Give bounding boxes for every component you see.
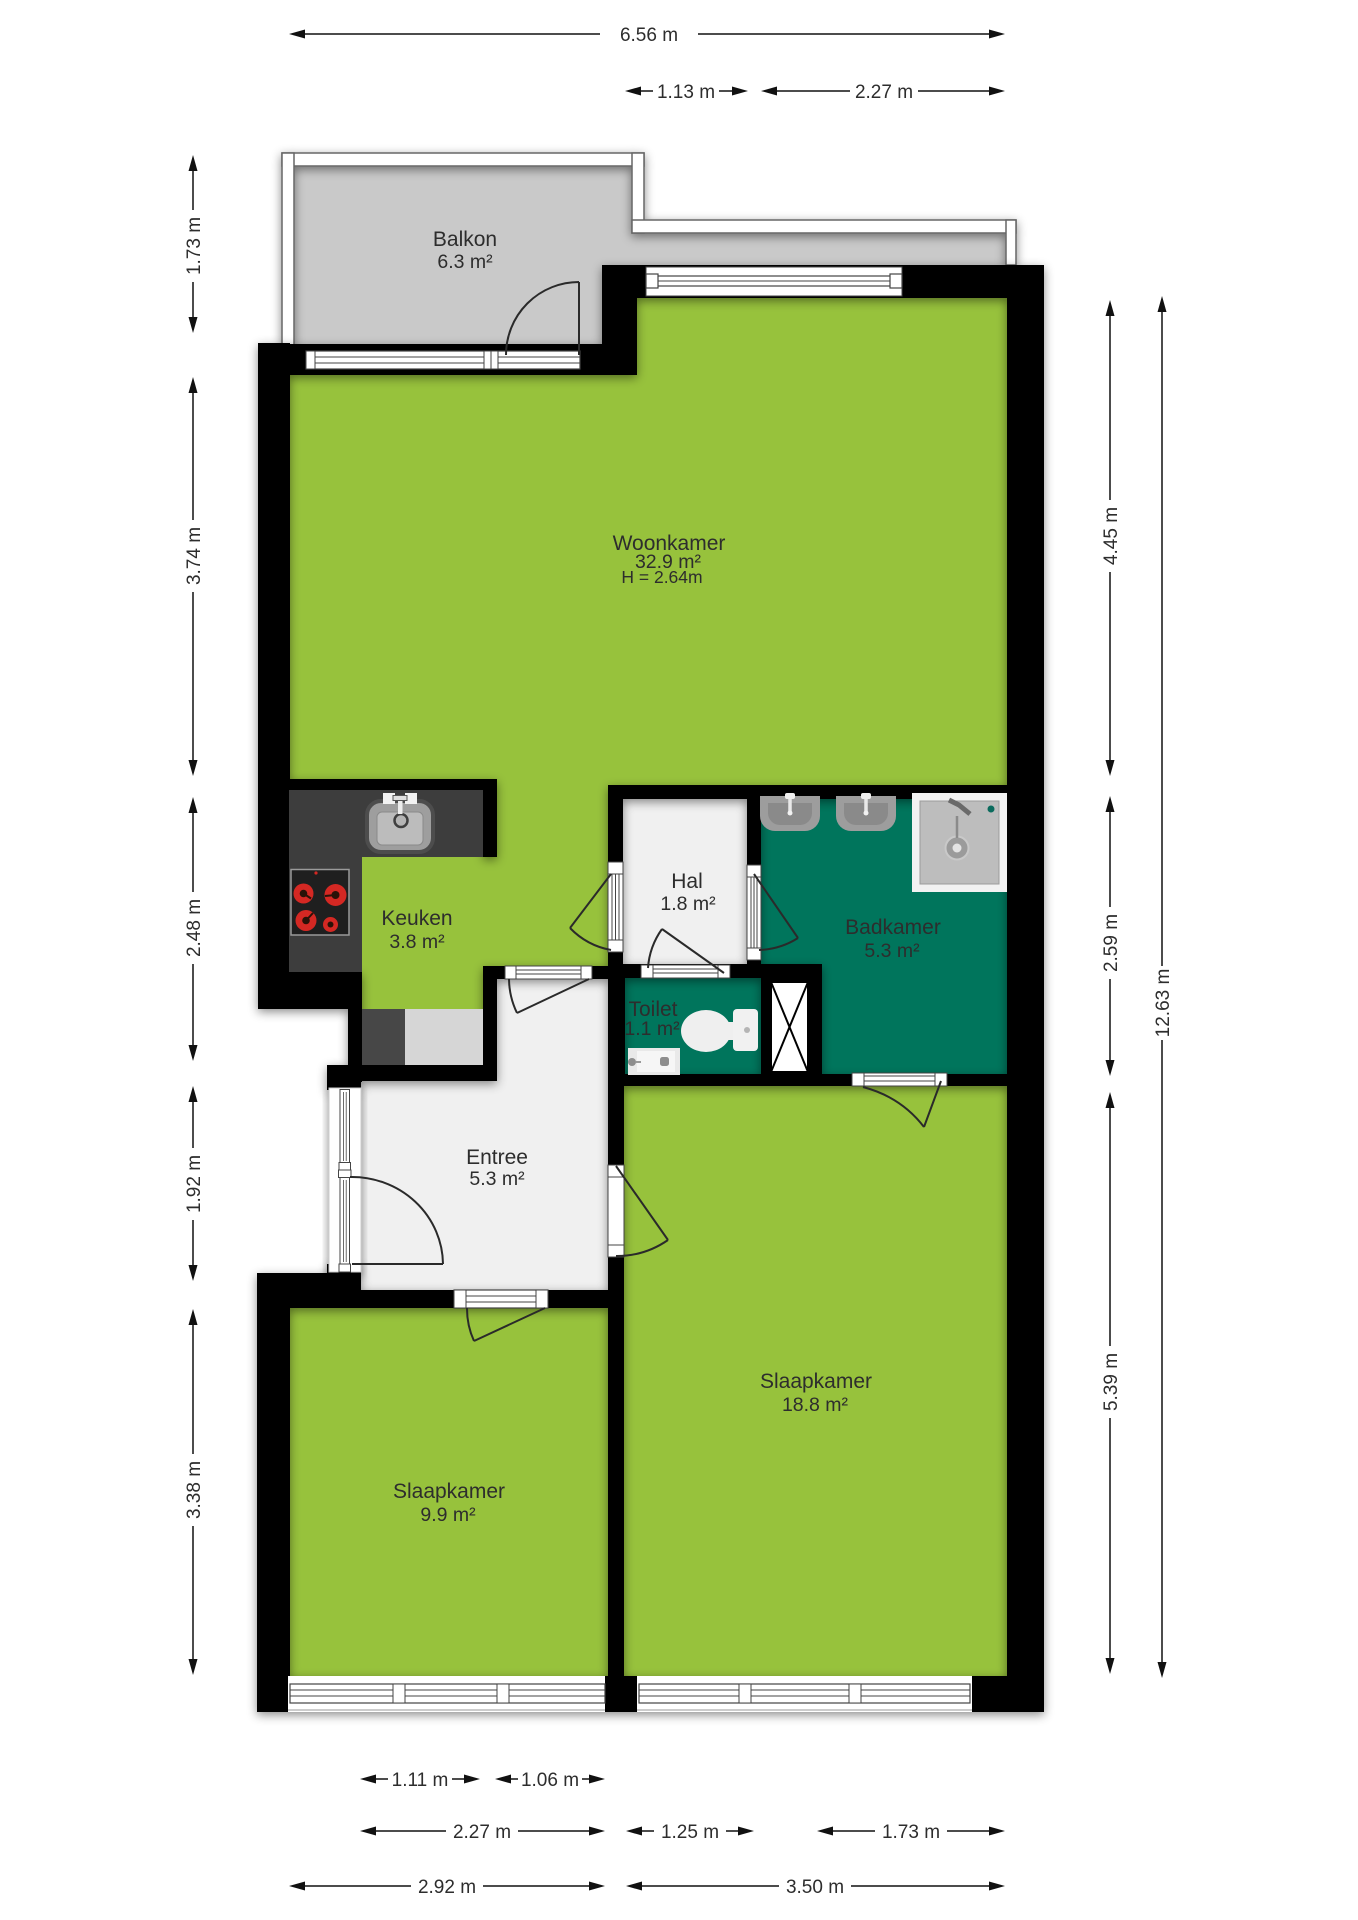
svg-text:Keuken: Keuken [381, 907, 452, 930]
svg-text:3.8 m²: 3.8 m² [389, 931, 445, 953]
svg-text:1.8 m²: 1.8 m² [660, 893, 716, 915]
svg-text:3.50 m: 3.50 m [786, 1877, 844, 1898]
svg-text:1.73 m: 1.73 m [882, 1822, 940, 1843]
svg-text:3.74 m: 3.74 m [184, 527, 205, 585]
svg-text:5.39 m: 5.39 m [1101, 1353, 1122, 1411]
svg-text:12.63 m: 12.63 m [1153, 969, 1174, 1038]
svg-text:Entree: Entree [466, 1146, 528, 1169]
svg-text:4.45 m: 4.45 m [1101, 507, 1122, 565]
svg-text:3.38 m: 3.38 m [184, 1461, 205, 1519]
svg-text:2.27 m: 2.27 m [453, 1822, 511, 1843]
svg-text:1.73 m: 1.73 m [184, 217, 205, 275]
svg-text:2.48 m: 2.48 m [184, 899, 205, 957]
svg-text:Hal: Hal [671, 870, 703, 893]
svg-text:2.92 m: 2.92 m [418, 1877, 476, 1898]
svg-text:2.27 m: 2.27 m [855, 82, 913, 103]
svg-text:2.59 m: 2.59 m [1101, 914, 1122, 972]
svg-text:18.8 m²: 18.8 m² [782, 1394, 849, 1416]
svg-text:9.9 m²: 9.9 m² [420, 1504, 476, 1526]
svg-text:5.3 m²: 5.3 m² [864, 940, 920, 962]
svg-text:6.56 m: 6.56 m [620, 25, 678, 46]
svg-text:Balkon: Balkon [433, 228, 497, 251]
svg-text:1.25 m: 1.25 m [661, 1822, 719, 1843]
svg-text:Slaapkamer: Slaapkamer [760, 1370, 872, 1393]
svg-text:Badkamer: Badkamer [845, 916, 941, 939]
svg-text:1.06 m: 1.06 m [521, 1770, 579, 1791]
svg-text:6.3 m²: 6.3 m² [437, 251, 493, 273]
svg-text:5.3 m²: 5.3 m² [469, 1168, 525, 1190]
svg-text:1.92 m: 1.92 m [184, 1155, 205, 1213]
svg-text:Slaapkamer: Slaapkamer [393, 1480, 505, 1503]
svg-text:1.1 m²: 1.1 m² [624, 1018, 680, 1040]
svg-text:H = 2.64m: H = 2.64m [621, 567, 702, 587]
svg-text:1.11 m: 1.11 m [392, 1770, 449, 1791]
svg-text:1.13 m: 1.13 m [657, 82, 715, 103]
